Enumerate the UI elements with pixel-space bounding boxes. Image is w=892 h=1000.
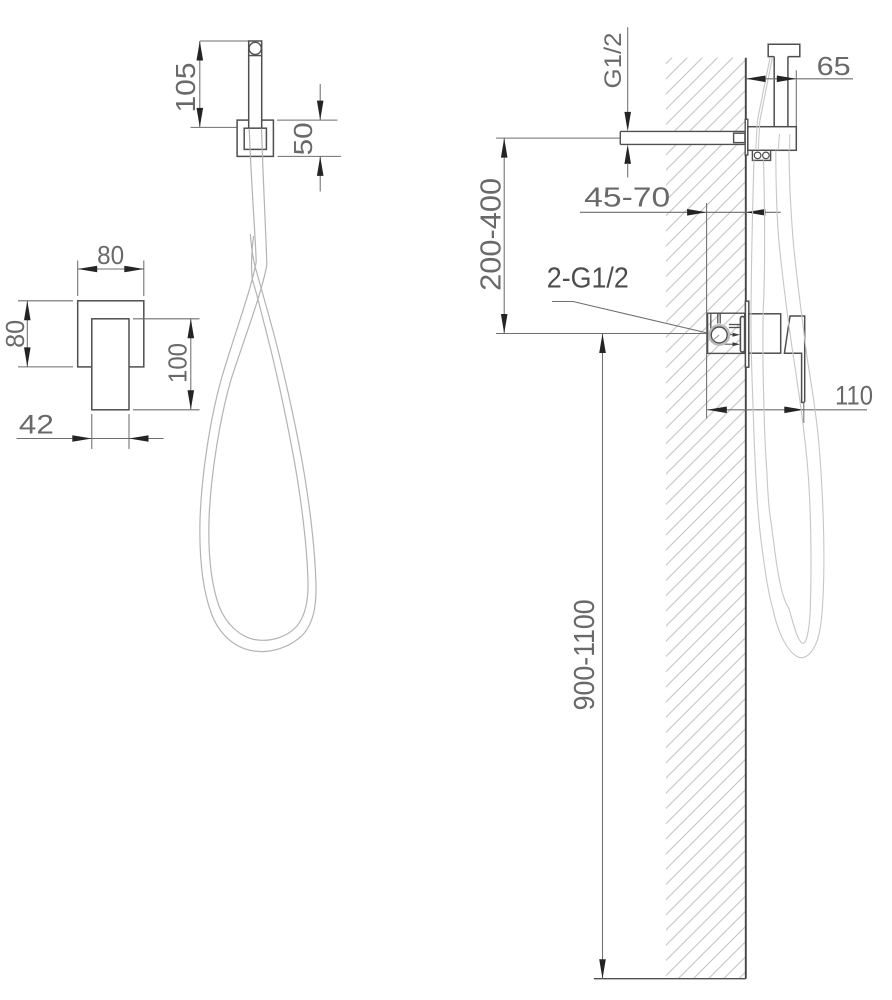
svg-text:200-400: 200-400 xyxy=(475,178,507,291)
svg-text:2-G1/2: 2-G1/2 xyxy=(547,263,629,295)
svg-text:80: 80 xyxy=(97,240,124,270)
svg-text:G1/2: G1/2 xyxy=(600,33,627,89)
svg-text:50: 50 xyxy=(290,122,318,155)
svg-text:105: 105 xyxy=(170,63,201,113)
svg-text:65: 65 xyxy=(817,51,851,81)
svg-text:80: 80 xyxy=(0,320,30,348)
svg-text:110: 110 xyxy=(835,381,873,411)
svg-text:900-1100: 900-1100 xyxy=(569,599,601,710)
svg-text:45-70: 45-70 xyxy=(584,181,670,212)
svg-text:100: 100 xyxy=(162,343,192,383)
svg-text:42: 42 xyxy=(19,409,54,439)
